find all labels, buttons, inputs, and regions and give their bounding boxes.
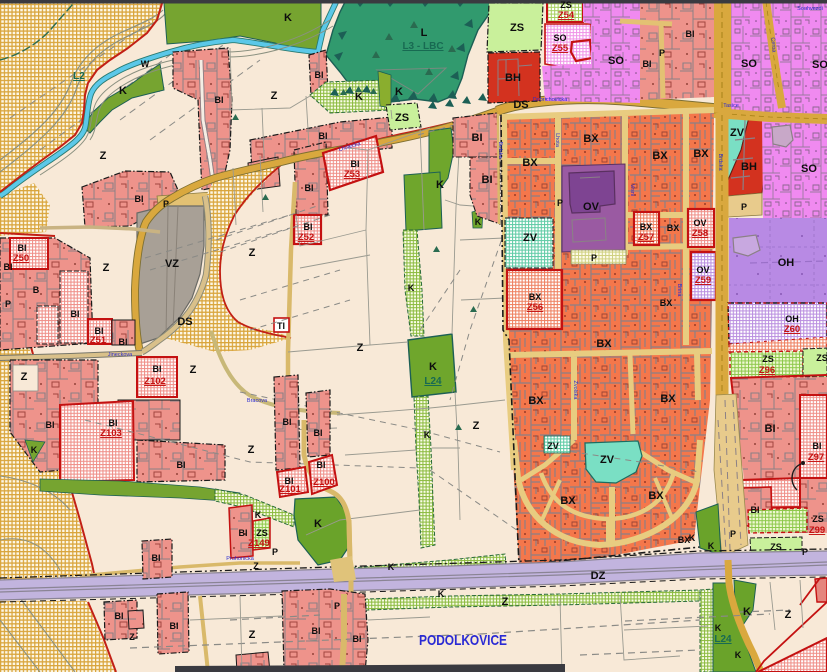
svg-text:Z100: Z100 — [313, 477, 335, 488]
svg-text:Z59: Z59 — [695, 275, 711, 286]
svg-text:K: K — [119, 85, 127, 97]
svg-text:Z: Z — [249, 247, 256, 259]
svg-text:ZS: ZS — [812, 514, 824, 524]
svg-text:K: K — [314, 518, 322, 530]
svg-text:Z52: Z52 — [298, 232, 314, 243]
svg-text:BI: BI — [239, 528, 248, 538]
svg-text:Lhota: Lhota — [554, 133, 560, 148]
svg-text:BI: BI — [283, 417, 292, 427]
svg-text:P: P — [591, 253, 597, 263]
svg-text:Z: Z — [249, 629, 256, 641]
svg-text:BI: BI — [109, 418, 118, 428]
svg-text:K: K — [743, 606, 751, 618]
svg-text:OV: OV — [693, 218, 706, 228]
svg-text:BI: BI — [765, 423, 776, 435]
svg-text:OV: OV — [696, 265, 709, 275]
svg-text:Z99: Z99 — [809, 525, 825, 536]
svg-text:BX: BX — [583, 133, 599, 145]
svg-text:K: K — [689, 533, 696, 543]
svg-text:BI: BI — [686, 29, 695, 39]
svg-text:BX: BX — [596, 338, 612, 350]
svg-text:DS: DS — [177, 316, 192, 328]
svg-text:DZ: DZ — [591, 570, 606, 582]
svg-text:K: K — [388, 562, 395, 572]
svg-text:K: K — [395, 86, 403, 98]
svg-text:BI: BI — [153, 364, 162, 374]
svg-text:Brina: Brina — [676, 284, 682, 298]
svg-text:BI: BI — [312, 626, 321, 636]
svg-text:Tasice: Tasice — [723, 103, 739, 109]
svg-text:P: P — [163, 199, 169, 209]
svg-text:BI: BI — [4, 262, 13, 272]
svg-text:BX: BX — [560, 495, 576, 507]
svg-text:Vrsni: Vrsni — [629, 184, 635, 196]
svg-text:BX: BX — [667, 223, 680, 233]
svg-text:ZV: ZV — [600, 454, 615, 466]
svg-text:Z: Z — [190, 364, 197, 376]
svg-text:DS: DS — [513, 99, 528, 111]
svg-text:ZS: ZS — [816, 353, 827, 363]
svg-text:BI: BI — [215, 95, 224, 105]
svg-text:Bracova: Bracova — [247, 398, 268, 404]
svg-text:Z96: Z96 — [759, 365, 775, 376]
svg-text:P: P — [334, 601, 340, 611]
svg-text:Z51: Z51 — [90, 335, 107, 346]
svg-text:BI: BI — [353, 634, 362, 644]
svg-text:K: K — [355, 91, 363, 103]
svg-text:BI: BI — [305, 183, 314, 193]
svg-text:BI: BI — [643, 59, 652, 69]
svg-text:L24: L24 — [714, 634, 732, 645]
svg-text:K: K — [436, 179, 444, 191]
svg-text:PODOLKOVICE: PODOLKOVICE — [419, 632, 507, 649]
svg-text:ZS: ZS — [770, 542, 782, 552]
svg-text:BI: BI — [71, 309, 80, 319]
svg-text:BI: BI — [315, 70, 324, 80]
svg-text:BI: BI — [135, 194, 144, 204]
svg-text:BI: BI — [304, 222, 313, 232]
svg-text:BI: BI — [152, 553, 161, 563]
svg-text:Z102: Z102 — [144, 376, 166, 387]
svg-text:Brdska: Brdska — [717, 153, 723, 171]
svg-text:Souhvezdi: Souhvezdi — [797, 6, 823, 12]
svg-text:K: K — [408, 283, 415, 293]
svg-text:B: B — [33, 285, 40, 295]
svg-text:L3 - LBC: L3 - LBC — [402, 41, 443, 52]
svg-text:Z149: Z149 — [248, 538, 270, 549]
svg-text:P: P — [659, 48, 665, 58]
svg-text:BX: BX — [529, 292, 542, 302]
svg-text:BI: BI — [813, 441, 822, 451]
svg-text:OH: OH — [785, 314, 799, 324]
svg-text:ZS: ZS — [762, 354, 774, 364]
svg-text:ZV: ZV — [523, 232, 538, 244]
svg-text:Z: Z — [100, 150, 107, 162]
svg-text:Z: Z — [129, 632, 135, 642]
svg-text:ZS: ZS — [395, 112, 409, 124]
svg-text:Z55: Z55 — [552, 43, 569, 54]
svg-text:K: K — [284, 12, 292, 24]
svg-text:TI: TI — [277, 321, 285, 331]
svg-text:Z: Z — [248, 444, 255, 456]
svg-text:BI: BI — [482, 174, 493, 186]
svg-text:K: K — [735, 650, 742, 660]
svg-text:Z103: Z103 — [100, 428, 122, 439]
svg-text:VZ: VZ — [165, 258, 179, 270]
svg-text:K: K — [429, 361, 437, 373]
svg-text:Z56: Z56 — [527, 302, 543, 313]
svg-text:P: P — [730, 529, 736, 539]
svg-text:OH: OH — [778, 257, 795, 269]
svg-text:Z58: Z58 — [692, 228, 708, 239]
svg-text:P: P — [272, 547, 278, 557]
svg-text:BI: BI — [18, 243, 27, 253]
svg-text:BX: BX — [528, 395, 544, 407]
svg-text:Z: Z — [502, 596, 509, 608]
svg-text:ZV: ZV — [730, 127, 745, 139]
svg-text:P: P — [5, 299, 11, 309]
svg-text:K: K — [438, 589, 445, 599]
svg-text:BI: BI — [119, 337, 128, 347]
svg-text:BI: BI — [472, 132, 483, 144]
svg-text:BX: BX — [522, 157, 538, 169]
svg-text:SO: SO — [801, 163, 817, 175]
svg-text:P: P — [802, 547, 808, 557]
svg-text:BI: BI — [46, 420, 55, 430]
svg-text:K: K — [708, 541, 715, 551]
svg-text:P: P — [741, 202, 747, 212]
svg-text:Z: Z — [473, 420, 480, 432]
svg-text:Z: Z — [357, 342, 364, 354]
svg-text:L24: L24 — [424, 376, 442, 387]
svg-text:BI: BI — [751, 505, 760, 515]
svg-text:BX: BX — [640, 222, 653, 232]
svg-text:K: K — [31, 445, 38, 455]
svg-text:OV: OV — [583, 201, 600, 213]
svg-text:W: W — [141, 59, 150, 69]
svg-text:Dobrichovicka: Dobrichovicka — [533, 97, 568, 103]
svg-text:BI: BI — [314, 428, 323, 438]
svg-text:BI: BI — [319, 131, 328, 141]
svg-text:BX: BX — [693, 148, 709, 160]
svg-text:L2: L2 — [73, 71, 85, 82]
svg-text:L: L — [421, 27, 428, 39]
svg-text:BI: BI — [351, 159, 360, 169]
svg-text:BI: BI — [317, 460, 326, 470]
svg-text:Z53: Z53 — [344, 169, 360, 180]
svg-text:ZS: ZS — [510, 22, 524, 34]
svg-text:K: K — [255, 510, 262, 520]
svg-text:ZS: ZS — [256, 528, 268, 538]
svg-text:Z60: Z60 — [784, 324, 800, 335]
svg-text:SO: SO — [608, 55, 624, 67]
svg-text:ZS: ZS — [560, 0, 572, 10]
svg-text:BX: BX — [660, 298, 673, 308]
svg-text:Z54: Z54 — [558, 10, 575, 21]
svg-text:K: K — [715, 623, 722, 633]
svg-text:Pruhonicka: Pruhonicka — [226, 556, 254, 562]
svg-text:Jineckova: Jineckova — [108, 352, 133, 358]
svg-text:BI: BI — [170, 621, 179, 631]
svg-text:Brdska: Brdska — [497, 141, 503, 159]
svg-text:BH: BH — [741, 161, 757, 173]
svg-text:BX: BX — [660, 393, 676, 405]
svg-text:BH: BH — [505, 72, 521, 84]
svg-text:Z97: Z97 — [808, 452, 824, 463]
svg-text:Z50: Z50 — [13, 253, 29, 264]
svg-text:SO: SO — [553, 33, 566, 43]
svg-text:SO: SO — [812, 59, 827, 71]
svg-text:Z: Z — [253, 561, 259, 571]
svg-text:K: K — [424, 430, 431, 440]
svg-text:Z: Z — [271, 90, 278, 102]
svg-text:Z: Z — [785, 609, 792, 621]
svg-text:Z: Z — [103, 262, 110, 274]
svg-text:Z57: Z57 — [638, 232, 654, 243]
svg-text:P: P — [557, 198, 563, 208]
svg-text:Z101: Z101 — [279, 484, 301, 495]
svg-text:Zvolska: Zvolska — [572, 381, 578, 401]
svg-text:BI: BI — [115, 611, 124, 621]
svg-text:BI: BI — [177, 460, 186, 470]
svg-text:ZV: ZV — [547, 441, 559, 451]
svg-text:BX: BX — [648, 490, 664, 502]
svg-text:K: K — [475, 217, 482, 227]
svg-text:BX: BX — [652, 150, 668, 162]
svg-text:SO: SO — [741, 58, 757, 70]
svg-text:Z: Z — [21, 371, 28, 383]
